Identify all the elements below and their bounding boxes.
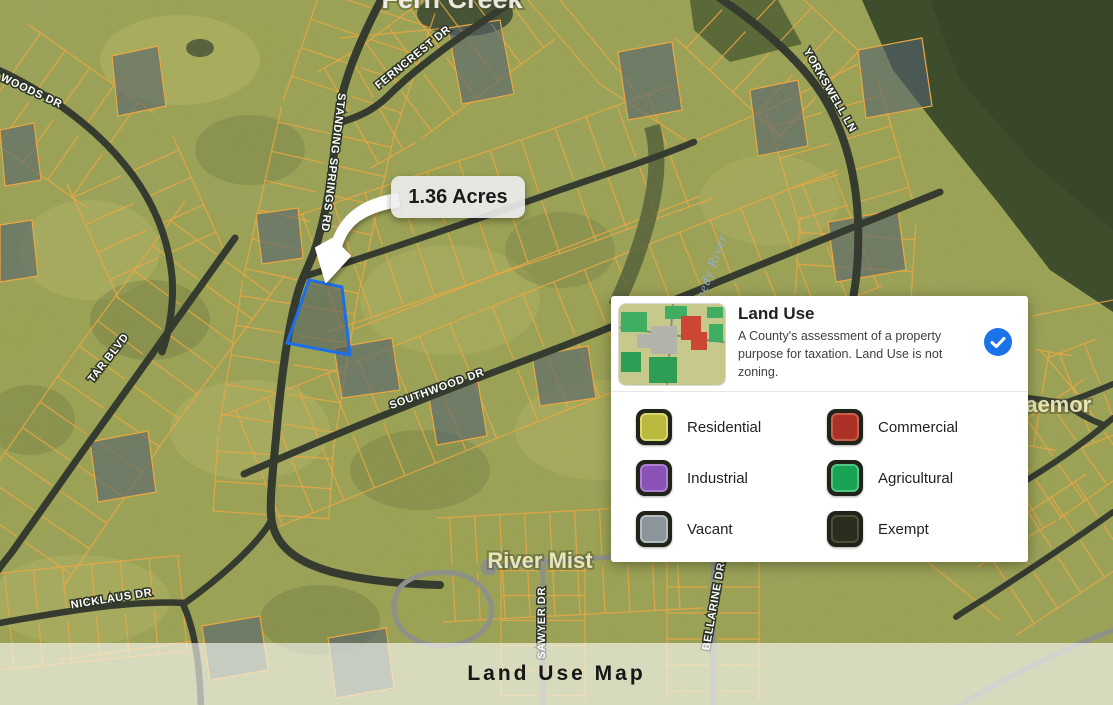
legend-item-exempt: Exempt: [827, 511, 1018, 547]
legend-item-agricultural: Agricultural: [827, 460, 1018, 496]
layer-enabled-toggle[interactable]: [984, 328, 1012, 356]
map-title-bar: Land Use Map: [0, 643, 1113, 705]
legend-item-commercial: Commercial: [827, 409, 1018, 445]
legend-item-residential: Residential: [636, 409, 827, 445]
legend-item-label: Agricultural: [878, 470, 953, 487]
legend-item-label: Vacant: [687, 521, 733, 538]
page-title: Land Use Map: [467, 662, 645, 686]
place-label-fern-creek: Fern Creek: [381, 0, 523, 14]
residential-swatch-icon: [636, 409, 672, 445]
land-use-legend-panel: Land Use A County's assessment of a prop…: [611, 296, 1028, 562]
legend-description: A County's assessment of a property purp…: [738, 328, 970, 381]
exempt-swatch-icon: [827, 511, 863, 547]
legend-item-vacant: Vacant: [636, 511, 827, 547]
legend-item-label: Commercial: [878, 419, 958, 436]
legend-item-label: Industrial: [687, 470, 748, 487]
parcel-area-label: 1.36 Acres: [408, 186, 507, 209]
legend-item-label: Exempt: [878, 521, 929, 538]
land-use-map-screen: Fern Creek River Mist Braemor Reedy Rive…: [0, 0, 1113, 705]
vacant-swatch-icon: [636, 511, 672, 547]
legend-item-label: Residential: [687, 419, 761, 436]
legend-items: Residential Commercial Industrial Agricu…: [611, 392, 1028, 547]
legend-item-industrial: Industrial: [636, 460, 827, 496]
legend-thumbnail-map: [618, 303, 726, 386]
place-label-river-mist: River Mist: [487, 548, 593, 573]
legend-title: Land Use: [738, 304, 815, 324]
checkmark-icon: [984, 328, 1012, 356]
commercial-swatch-icon: [827, 409, 863, 445]
industrial-swatch-icon: [636, 460, 672, 496]
legend-header: Land Use A County's assessment of a prop…: [611, 296, 1028, 392]
parcel-area-callout: 1.36 Acres: [391, 176, 525, 218]
agricultural-swatch-icon: [827, 460, 863, 496]
